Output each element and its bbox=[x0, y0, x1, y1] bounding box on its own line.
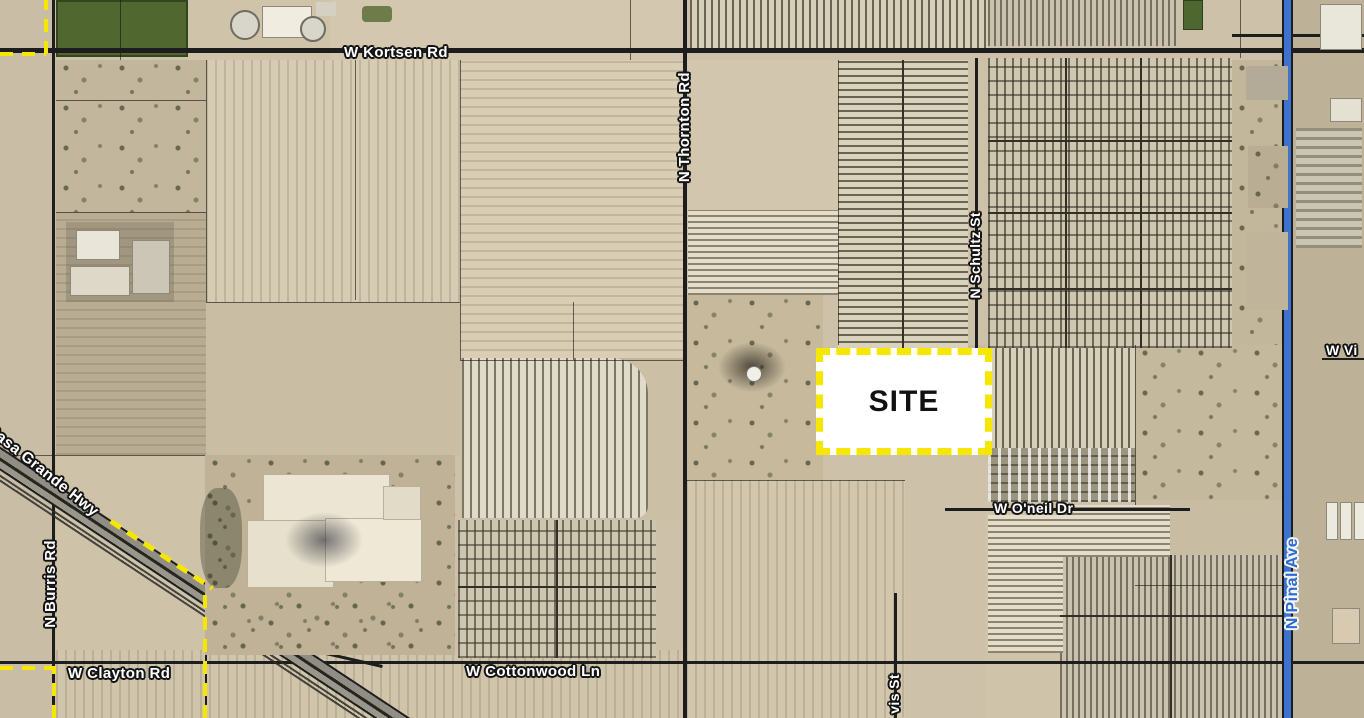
building-roof bbox=[1332, 608, 1360, 644]
road-label-vista-partial: W Vi bbox=[1326, 342, 1358, 358]
warehouse-roof bbox=[1326, 502, 1338, 540]
warehouse-roof bbox=[1330, 98, 1362, 122]
storage-tank bbox=[300, 16, 326, 42]
field-patch bbox=[686, 60, 838, 210]
parcel-line bbox=[573, 302, 574, 360]
industrial-lot bbox=[1246, 232, 1288, 310]
road-label-schultz: N Schultz St bbox=[967, 212, 983, 298]
field-patch bbox=[686, 480, 905, 718]
road-label-burris: N Burris Rd bbox=[42, 540, 59, 628]
road-kortsen bbox=[0, 48, 1364, 53]
apartment-complex bbox=[988, 448, 1135, 502]
road-label-cottonwood: W Cottonwood Ln bbox=[466, 663, 600, 680]
parcel-line bbox=[56, 100, 206, 101]
building-roof bbox=[70, 266, 130, 296]
field-patch bbox=[56, 60, 206, 212]
road-label-kortsen: W Kortsen Rd bbox=[344, 44, 448, 61]
street-line bbox=[988, 140, 1232, 142]
field-patch bbox=[206, 302, 460, 455]
street-line bbox=[556, 520, 558, 658]
subdivision-houses bbox=[988, 0, 1180, 46]
trailer-park bbox=[988, 515, 1063, 653]
parcel-line bbox=[460, 360, 686, 361]
building-roof bbox=[76, 230, 120, 260]
parcel-line bbox=[838, 60, 839, 345]
street-line bbox=[1170, 555, 1172, 718]
street-line bbox=[1140, 58, 1142, 348]
site-marker: SITE bbox=[816, 348, 992, 455]
trailer-park bbox=[462, 358, 648, 518]
warehouse-roof bbox=[1320, 4, 1362, 50]
trailer-park bbox=[1060, 555, 1285, 718]
industrial-lot bbox=[1246, 66, 1288, 100]
tree-cluster bbox=[200, 488, 242, 588]
street-line bbox=[1060, 615, 1285, 617]
water-tank bbox=[746, 366, 762, 382]
street-line bbox=[1065, 58, 1067, 348]
industrial-complex bbox=[66, 222, 174, 302]
building-shadow bbox=[285, 512, 363, 568]
industrial-lot bbox=[1296, 128, 1362, 248]
vegetation-patch bbox=[362, 6, 392, 22]
road-label-oneil: W O'neil Dr bbox=[994, 500, 1073, 516]
water-treatment-plant bbox=[228, 0, 340, 50]
pond bbox=[1183, 0, 1203, 30]
parcel-line bbox=[1135, 585, 1285, 586]
road-label-clayton: W Clayton Rd bbox=[68, 665, 170, 682]
street-line bbox=[902, 60, 904, 350]
trailer-park bbox=[1062, 505, 1170, 557]
warehouse-roof bbox=[1354, 502, 1364, 540]
aerial-map: SITE W Kortsen Rd N Thornton Rd N Schult… bbox=[0, 0, 1364, 718]
building-roof bbox=[383, 486, 421, 520]
subdivision-houses bbox=[988, 348, 1135, 452]
industrial-lot bbox=[1248, 146, 1288, 208]
parcel-line bbox=[1135, 345, 1136, 505]
tree-cluster bbox=[233, 598, 423, 650]
street-line bbox=[988, 212, 1232, 214]
boundary-line-yellow bbox=[44, 0, 48, 54]
boundary-line-yellow bbox=[0, 666, 56, 670]
road-label-pinal: N Pinal Ave bbox=[1284, 538, 1302, 629]
factory-building bbox=[233, 468, 428, 596]
parcel-line bbox=[206, 60, 207, 302]
road-label-thornton: N Thornton Rd bbox=[676, 72, 693, 182]
boundary-line-yellow bbox=[203, 588, 207, 718]
road-label-davis-partial: vis St bbox=[886, 674, 902, 714]
building-roof bbox=[132, 240, 170, 294]
road-stub-vista bbox=[1322, 358, 1364, 360]
warehouse-roof bbox=[1340, 502, 1352, 540]
boundary-line-yellow bbox=[0, 52, 46, 56]
subdivision-houses bbox=[988, 58, 1232, 348]
site-label: SITE bbox=[869, 385, 940, 419]
boundary-line-yellow bbox=[52, 668, 56, 718]
subdivision-houses bbox=[690, 0, 988, 48]
street-line bbox=[988, 288, 1232, 290]
field-patch bbox=[206, 60, 460, 302]
parcel-line bbox=[686, 480, 905, 481]
storage-tank bbox=[230, 10, 260, 40]
parcel-line bbox=[355, 60, 356, 300]
parcel-line bbox=[56, 212, 206, 213]
trailer-park bbox=[688, 210, 838, 295]
parcel-line bbox=[460, 60, 461, 360]
building-roof bbox=[316, 2, 336, 16]
parcel-line bbox=[206, 302, 460, 303]
